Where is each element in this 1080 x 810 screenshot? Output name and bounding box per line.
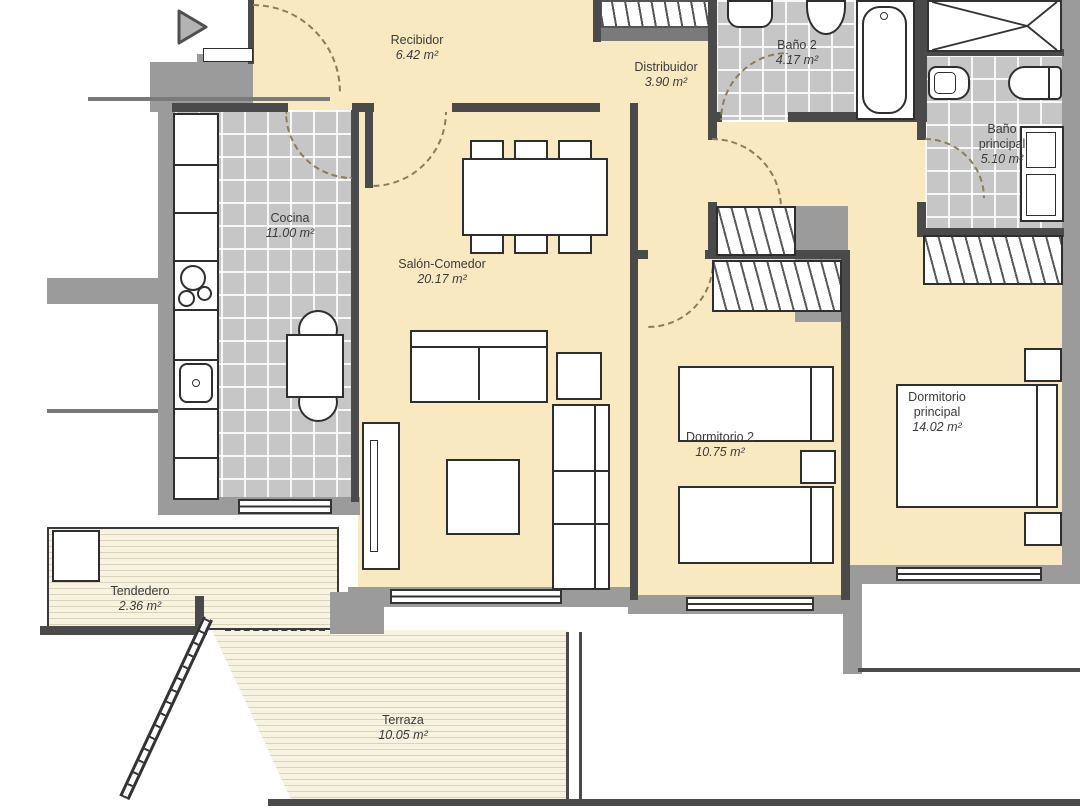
dining-chair-5	[514, 234, 548, 254]
terrace-railing	[119, 616, 213, 800]
kitchen-sink-icon	[179, 363, 213, 403]
room-name: Dormitorio 2	[686, 430, 754, 445]
nightstand-dormp-2	[1024, 512, 1062, 546]
room-name: Distribuidor	[634, 60, 697, 75]
stove-burner-small-2	[197, 286, 212, 301]
wall-cocina-top	[172, 103, 288, 112]
wall-tendedero-bottom	[40, 626, 207, 635]
wall-hall-bottom-left	[630, 250, 648, 259]
room-name: Salón-Comedor	[398, 257, 486, 272]
floorplan-canvas: Recibidor 6.42 m² Distribuidor 3.90 m² B…	[0, 0, 1080, 810]
bathroom-cabinet	[1020, 126, 1064, 222]
wall-recibidor-stairs	[593, 0, 601, 42]
room-name: Terraza	[378, 713, 427, 728]
bathtub-drain	[880, 12, 888, 20]
room-area: 20.17 m²	[398, 272, 486, 287]
room-label-cocina: Cocina 11.00 m²	[266, 211, 314, 241]
wall-bano2-shower	[915, 0, 927, 122]
window-cocina	[238, 499, 332, 514]
room-area: 2.36 m²	[110, 599, 169, 614]
dining-chair-1	[470, 140, 504, 160]
wall-terraza-right-2	[579, 632, 582, 804]
wardrobe-hall	[716, 206, 796, 256]
room-name: Tendedero	[110, 584, 169, 599]
room-area: 3.90 m²	[634, 75, 697, 90]
wardrobe-dorm2	[712, 260, 842, 312]
utility-unit	[52, 530, 100, 582]
stairs-icon	[600, 0, 712, 28]
room-area: 10.75 m²	[686, 445, 754, 460]
window-salon	[390, 589, 562, 604]
kitchen-table	[286, 334, 344, 398]
nightstand-dorm2	[800, 450, 836, 484]
line-neighbor-mid	[47, 409, 158, 413]
toilet-icon	[727, 0, 773, 28]
dining-table	[462, 158, 608, 236]
shelf-unit	[552, 404, 610, 590]
room-label-bano-principal: Baño principal 5.10 m²	[979, 122, 1026, 166]
bidet-icon	[928, 66, 970, 100]
wall-neighbor-stub	[47, 278, 158, 304]
wall-salon-dorm	[630, 103, 638, 600]
wall-right	[1062, 0, 1080, 584]
room-area: 4.17 m²	[776, 53, 818, 68]
bidet-inner	[934, 72, 956, 94]
bathtub-icon	[856, 0, 915, 120]
room-label-dormitorio2: Dormitorio 2 10.75 m²	[686, 430, 754, 460]
wall-terraza-right-1	[566, 632, 569, 804]
wall-terrace-pillar	[330, 592, 384, 634]
tv-icon	[370, 440, 378, 552]
bathtub-inner	[862, 6, 907, 114]
room-label-tendedero: Tendedero 2.36 m²	[110, 584, 169, 614]
toilet-principal-icon	[1008, 66, 1062, 100]
room-label-recibidor: Recibidor 6.42 m²	[391, 33, 444, 63]
kitchen-counter	[173, 113, 219, 500]
play-icon[interactable]	[176, 8, 210, 46]
coffee-table	[446, 459, 520, 535]
shower-tray-icon	[927, 0, 1062, 52]
room-name: Recibidor	[391, 33, 444, 48]
room-name: Cocina	[266, 211, 314, 226]
line-neighbor-top	[88, 97, 330, 101]
wall-terraza-bottom	[268, 799, 1080, 806]
room-label-dormitorio-principal: Dormitorio principal 14.02 m²	[908, 390, 966, 434]
room-area: 6.42 m²	[391, 48, 444, 63]
wall-cocina-salon	[351, 110, 359, 502]
line-bottom-right	[858, 668, 1080, 672]
cabinet-shelf-1	[1026, 132, 1056, 168]
room-name: Baño 2	[776, 38, 818, 53]
sofa	[410, 330, 548, 403]
wall-dorm2-dormp	[841, 250, 850, 600]
window-dorm2	[686, 597, 814, 611]
room-label-bano2: Baño 2 4.17 m²	[776, 38, 818, 68]
room-label-terraza: Terraza 10.05 m²	[378, 713, 427, 743]
room-label-salon: Salón-Comedor 20.17 m²	[398, 257, 486, 287]
room-name: Baño principal	[979, 122, 1026, 152]
cabinet-shelf-2	[1026, 174, 1056, 216]
dining-chair-2	[514, 140, 548, 160]
stove-burner-small-1	[178, 290, 195, 307]
tv-unit	[362, 422, 400, 570]
terrace-dashed-threshold	[225, 628, 325, 631]
dining-chair-6	[558, 234, 592, 254]
dining-chair-4	[470, 234, 504, 254]
room-area: 14.02 m²	[908, 420, 966, 435]
room-area: 5.10 m²	[979, 152, 1026, 167]
room-area: 10.05 m²	[378, 728, 427, 743]
sink-drain	[192, 379, 200, 387]
nightstand-dormp-1	[1024, 348, 1062, 382]
side-table	[556, 352, 602, 400]
wall-stairs-bottom	[595, 28, 716, 41]
window-dormp	[896, 567, 1042, 581]
room-area: 11.00 m²	[266, 226, 314, 241]
dining-chair-3	[558, 140, 592, 160]
room-name: Dormitorio principal	[908, 390, 966, 420]
wall-recibidor-bottom	[452, 103, 600, 112]
bed-single-2	[678, 486, 834, 564]
entrance-step	[203, 48, 253, 62]
wardrobe-dormp	[923, 235, 1063, 285]
room-label-distribuidor: Distribuidor 3.90 m²	[634, 60, 697, 90]
